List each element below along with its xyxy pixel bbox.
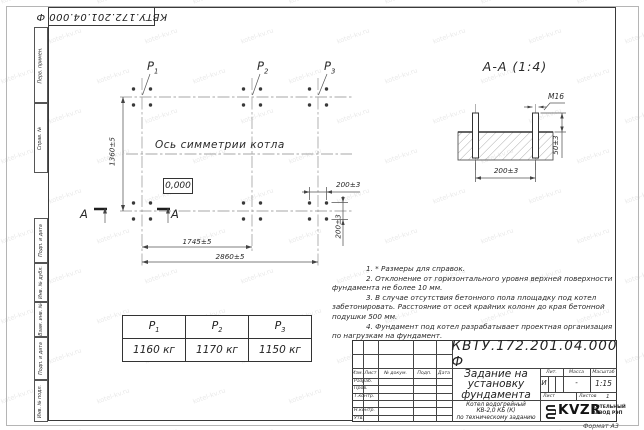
dim-bolt-spacing-y: 200±3 [334, 207, 343, 247]
anchor-bolt-dot [132, 217, 135, 220]
margin-field: Подп. и дата [34, 337, 48, 380]
tb-scale-label: Масштаб [590, 370, 617, 375]
title-block-line [555, 376, 556, 392]
anchor-bolt-dot [259, 103, 262, 106]
load-table-value: 1150 кг [249, 339, 312, 362]
tb-sheets-label: Листов [579, 394, 597, 399]
kvzr-company-name: КОТЕЛЬНЫЙ ЗАВОД РЭП [592, 405, 626, 416]
margin-field-label: Перв. примен. [39, 47, 44, 83]
margin-field: Подп. и дата [34, 218, 48, 263]
tb-lit-value: И [540, 379, 548, 387]
anchor-bolt-dot [308, 103, 311, 106]
anchor-bolt-dot [149, 201, 152, 204]
anchor-bolt-dot [259, 217, 262, 220]
tb-mass-value: - [563, 379, 590, 387]
drawing-sheet: kotel-kv.rukotel-kv.rukotel-kv.rukotel-k… [0, 0, 644, 430]
tb-row-utv: Утв. [354, 416, 364, 421]
tb-row-tkontr: Т.контр. [354, 394, 374, 399]
symmetry-axis-label: Ось симметрии котла [155, 139, 285, 151]
dim-width-total: 2860±5 [204, 252, 256, 261]
anchor-bolt-dot [242, 103, 245, 106]
anchor-bolt-dot [308, 217, 311, 220]
margin-field-label: Инв. № подл. [39, 384, 44, 417]
anchor-bolt-dot [242, 217, 245, 220]
tb-mass-label: Масса [563, 370, 590, 375]
bolt-thread-label: М16 [548, 92, 564, 101]
tb-col-izm: Изм. [352, 371, 363, 376]
anchor-bolt-dot [149, 217, 152, 220]
load-table-header-row: P1 P2 P3 [123, 316, 312, 339]
anchor-bolt-dot [132, 87, 135, 90]
note-line: фундамента не более 10 мм. [332, 283, 624, 293]
tb-col-podp: Подп. [413, 371, 436, 376]
anchor-bolt-dot [132, 201, 135, 204]
tb-col-data: Дата [436, 371, 452, 376]
anchor-bolt-dot [325, 87, 328, 90]
margin-field: Взам. инв. № [34, 302, 48, 337]
anchor-bolt-dot [149, 87, 152, 90]
tb-sheets-value: 1 [606, 394, 610, 400]
anchor-bolt-dot [132, 103, 135, 106]
note-line: забетонировать. Расстояние от осей крайн… [332, 302, 624, 312]
tb-col-docnum: № докум. [378, 371, 413, 376]
load-table: P1 P2 P3 1160 кг 1170 кг 1150 кг [122, 315, 312, 362]
anchor-bolt-dot [325, 103, 328, 106]
load-point-label-2: P2 [257, 59, 268, 75]
tb-row-nkontr: Н.контр. [354, 408, 375, 413]
anchor-bolt-dot [259, 87, 262, 90]
load-point-label-3: P3 [324, 59, 335, 75]
kvzr-coil-icon [545, 404, 556, 420]
load-table-value: 1160 кг [123, 339, 186, 362]
format-note: Формат А3 [583, 423, 619, 430]
note-line: 4. Фундамент под котел разрабатывает про… [332, 322, 624, 332]
tb-col-list: Лист [363, 371, 378, 376]
note-line: 3. В случае отсутствия бетонного пола пл… [332, 293, 624, 303]
note-line: 1. * Размеры для справок. [332, 264, 624, 274]
top-designation-box: КВТУ.172.201.04.000 Ф [48, 7, 155, 26]
title-block-line [413, 340, 414, 422]
note-line: подушки 500 мм. [332, 312, 624, 322]
load-table-header: P3 [249, 316, 312, 339]
load-table-header: P2 [186, 316, 249, 339]
title-block-line [436, 340, 437, 422]
dim-width-left: 1745±5 [171, 237, 223, 246]
anchor-bolt-dot [242, 87, 245, 90]
load-table-value-row: 1160 кг 1170 кг 1150 кг [123, 339, 312, 362]
title-block-line [378, 340, 379, 422]
load-table-header: P1 [123, 316, 186, 339]
section-title: А-А (1:4) [470, 59, 560, 74]
tb-lit-label: Лит. [540, 370, 563, 375]
tb-product-name: Котел водогрейный КВ-2,0 КБ (К) по техни… [452, 402, 540, 422]
title-block-doc-number: КВТУ.172.201.04.000 Ф [452, 341, 617, 367]
margin-field: Инв. № подл. [34, 380, 48, 422]
section-letter-right: А [171, 207, 179, 221]
dim-protrusion: 50±3 [552, 127, 560, 163]
title-block-line [352, 415, 452, 416]
margin-field-label: Подп. и дата [39, 224, 44, 257]
top-designation-text: КВТУ.172.201.04.000 Ф [36, 11, 167, 22]
elevation-mark: 0,000 [163, 178, 193, 194]
margin-field: Справ. № [34, 103, 48, 173]
title-block-line [352, 354, 452, 355]
tb-row-prov: Пров. [354, 386, 368, 391]
dim-height: 1360±5 [108, 134, 117, 170]
dim-bolt-spacing-x: 200±3 [336, 180, 360, 189]
tb-sheet-label: Лист [543, 394, 555, 399]
anchor-bolt-dot [242, 201, 245, 204]
anchor-bolt-dot [325, 201, 328, 204]
margin-field-label: Подп. и дата [39, 342, 44, 375]
load-point-label-1: P1 [147, 59, 158, 75]
title-block-line [576, 392, 577, 400]
tb-doc-title: Задание на установку фундамента [452, 369, 540, 400]
load-table-value: 1170 кг [186, 339, 249, 362]
anchor-bolt-dot [308, 201, 311, 204]
margin-field: Инв. № дубл. [34, 263, 48, 302]
margin-field-label: Инв. № дубл. [39, 266, 44, 299]
margin-field: Перв. примен. [34, 27, 48, 103]
margin-field-label: Справ. № [39, 126, 44, 149]
anchor-bolt-dot [308, 87, 311, 90]
title-block-line [540, 376, 617, 377]
notes-block: 1. * Размеры для справок.2. Отклонение о… [332, 264, 624, 341]
anchor-bolt-dot [325, 217, 328, 220]
tb-scale-value: 1:15 [590, 379, 617, 388]
section-letter-left: А [80, 207, 88, 221]
anchor-bolt-dot [149, 103, 152, 106]
note-line: 2. Отклонение от горизонтального уровня … [332, 274, 624, 284]
anchor-bolt-dot [259, 201, 262, 204]
margin-field-label: Взам. инв. № [39, 303, 44, 336]
dim-section-spacing: 200±3 [485, 166, 527, 175]
tb-row-razrab: Разраб. [354, 379, 372, 384]
